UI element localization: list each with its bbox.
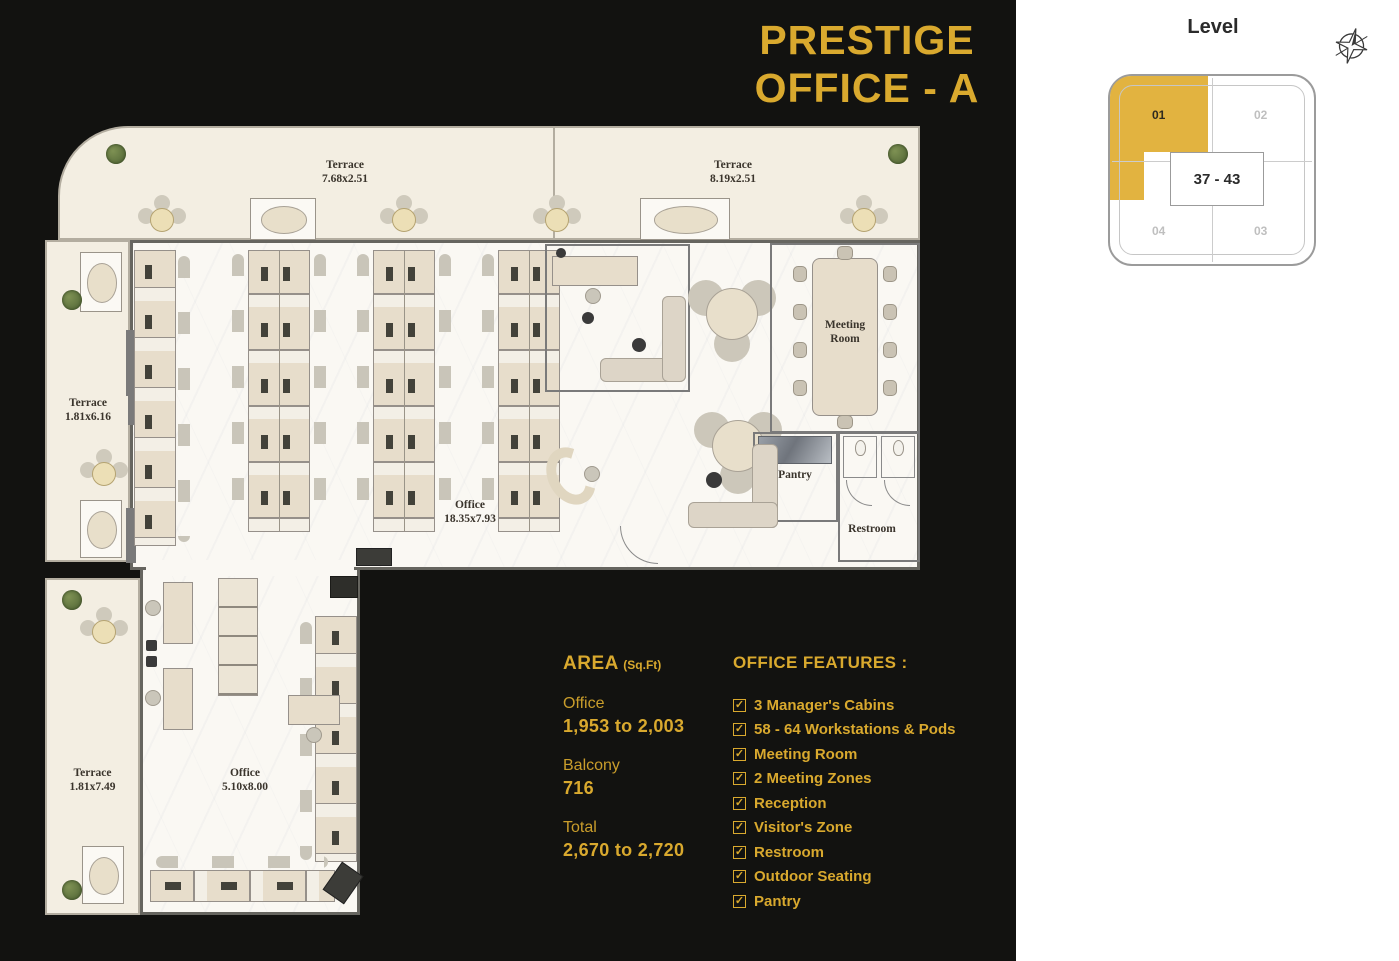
checkbox-checked-icon: ✓: [733, 699, 746, 712]
room-name: Terrace: [48, 396, 128, 410]
meeting-chair: [793, 304, 807, 320]
page-title: PRESTIGE OFFICE - A: [742, 16, 992, 112]
room-dims: 1.81x6.16: [48, 410, 128, 424]
reception-chair: [584, 466, 600, 482]
chair-row: [178, 256, 190, 542]
feature-item: ✓ Meeting Room: [733, 742, 1003, 767]
feature-label: Restroom: [754, 844, 824, 861]
area-total-label: Total: [563, 819, 733, 837]
room-name: Restroom: [832, 522, 912, 536]
terrace-table: [82, 846, 124, 904]
feature-item: ✓ Restroom: [733, 840, 1003, 865]
planter: [888, 144, 908, 164]
checkbox-checked-icon: ✓: [733, 797, 746, 810]
desk-equipment: [146, 656, 157, 667]
side-table: [632, 338, 646, 352]
chair-row: [232, 254, 244, 530]
feature-item: ✓ Pantry: [733, 889, 1003, 914]
area-office-label: Office: [563, 695, 733, 713]
room-name: Terrace: [678, 158, 788, 172]
checkbox-checked-icon: ✓: [733, 772, 746, 785]
feature-item: ✓ Visitor's Zone: [733, 816, 1003, 841]
planter: [62, 290, 82, 310]
room-dims: 5.10x8.00: [195, 780, 295, 794]
features-list: ✓ 3 Manager's Cabins ✓ 58 - 64 Workstati…: [733, 693, 1003, 914]
level-quadrant-01: 01: [1152, 108, 1165, 122]
office-chair: [145, 600, 161, 616]
meeting-zone-table-1: [706, 288, 758, 340]
storage-cabinets: [218, 578, 258, 696]
label-pantry: Pantry: [762, 468, 828, 482]
feature-label: 3 Manager's Cabins: [754, 697, 894, 714]
workstation-column-1: [134, 250, 176, 546]
workstation-row: [150, 870, 335, 902]
meeting-chair: [837, 415, 853, 429]
toilet-icon: [855, 440, 866, 456]
feature-item: ✓ 2 Meeting Zones: [733, 767, 1003, 792]
feature-label: Meeting Room: [754, 746, 857, 763]
room-name: Office: [415, 498, 525, 512]
meeting-chair: [883, 380, 897, 396]
label-restroom: Restroom: [832, 522, 912, 536]
room-dims: 1.81x7.49: [50, 780, 135, 794]
room-dims: 8.19x2.51: [678, 172, 788, 186]
area-total-value: 2,670 to 2,720: [563, 840, 733, 861]
chair-row: [439, 254, 451, 530]
area-section: AREA (Sq.Ft) Office 1,953 to 2,003 Balco…: [563, 653, 733, 861]
workstation-column-5: [315, 616, 357, 862]
terrace-table: [150, 208, 174, 232]
level-diagram: 01 02 03 04 37 - 43: [1108, 74, 1316, 266]
cabin-sofa: [662, 296, 686, 382]
feature-label: Visitor's Zone: [754, 819, 852, 836]
feature-label: 2 Meeting Zones: [754, 770, 872, 787]
workstation-desk: [288, 695, 340, 725]
chair-row: [314, 254, 326, 530]
level-heading: Level: [1108, 16, 1318, 39]
terrace-table: [545, 208, 569, 232]
meeting-chair: [883, 304, 897, 320]
label-office-secondary: Office 5.10x8.00: [195, 766, 295, 795]
label-office-main: Office 18.35x7.93: [415, 498, 525, 527]
toilet-icon: [893, 440, 904, 456]
terrace-table: [80, 500, 122, 558]
page-title-line1: PRESTIGE: [742, 16, 992, 64]
level-range: 37 - 43: [1170, 152, 1264, 206]
terrace-top: [58, 126, 920, 240]
terrace-table: [92, 462, 116, 486]
visitor-sofa: [688, 502, 778, 528]
planter: [106, 144, 126, 164]
desk-equipment: [146, 640, 157, 651]
meeting-chair: [837, 246, 853, 260]
terrace-table: [392, 208, 416, 232]
terrace-table: [92, 620, 116, 644]
manager-desk: [163, 582, 193, 644]
checkbox-checked-icon: ✓: [733, 821, 746, 834]
chair-row: [156, 856, 328, 868]
manager-desk: [163, 668, 193, 730]
features-heading: OFFICE FEATURES :: [733, 653, 1003, 673]
manager-desk: [552, 256, 638, 286]
feature-label: Outdoor Seating: [754, 868, 872, 885]
office-chair: [306, 727, 322, 743]
room-dims: 18.35x7.93: [415, 512, 525, 526]
label-terrace-top-left: Terrace 7.68x2.51: [290, 158, 400, 187]
feature-label: Reception: [754, 795, 827, 812]
label-terrace-top-right: Terrace 8.19x2.51: [678, 158, 788, 187]
compass-icon: [1328, 20, 1376, 68]
checkbox-checked-icon: ✓: [733, 895, 746, 908]
chair-row: [482, 254, 494, 530]
checkbox-checked-icon: ✓: [733, 870, 746, 883]
planter: [62, 880, 82, 900]
terrace-table: [80, 252, 122, 312]
print-station: [356, 548, 392, 566]
area-office-value: 1,953 to 2,003: [563, 716, 733, 737]
feature-label: 58 - 64 Workstations & Pods: [754, 721, 955, 738]
room-name: Pantry: [762, 468, 828, 482]
room-name: Terrace: [290, 158, 400, 172]
side-table: [582, 312, 594, 324]
checkbox-checked-icon: ✓: [733, 748, 746, 761]
feature-label: Pantry: [754, 893, 801, 910]
room-name: Meeting Room: [812, 318, 878, 347]
workstation-column-2: [248, 250, 310, 532]
page: PRESTIGE OFFICE - A: [0, 0, 1399, 961]
features-section: OFFICE FEATURES : ✓ 3 Manager's Cabins ✓…: [733, 653, 1003, 914]
terrace-table: [852, 208, 876, 232]
office-seam: [146, 560, 354, 576]
feature-item: ✓ 58 - 64 Workstations & Pods: [733, 718, 1003, 743]
copier: [330, 576, 358, 598]
desk-plant: [556, 248, 566, 258]
terrace-table: [250, 198, 316, 240]
checkbox-checked-icon: ✓: [733, 846, 746, 859]
area-unit: (Sq.Ft): [623, 658, 661, 672]
label-meeting-room: Meeting Room: [812, 318, 878, 347]
office-chair: [145, 690, 161, 706]
feature-item: ✓ Reception: [733, 791, 1003, 816]
label-terrace-left: Terrace 1.81x6.16: [48, 396, 128, 425]
area-balcony-value: 716: [563, 778, 733, 799]
room-name: Office: [195, 766, 295, 780]
chair-row: [357, 254, 369, 530]
feature-item: ✓ Outdoor Seating: [733, 865, 1003, 890]
room-name: Terrace: [50, 766, 135, 780]
meeting-chair: [883, 266, 897, 282]
area-heading: AREA: [563, 653, 619, 674]
meeting-chair: [793, 380, 807, 396]
level-quadrant-02: 02: [1254, 108, 1267, 122]
page-title-line2: OFFICE - A: [742, 64, 992, 112]
room-dims: 7.68x2.51: [290, 172, 400, 186]
level-quadrant-03: 03: [1254, 224, 1267, 238]
visitor-side-table: [706, 472, 722, 488]
area-balcony-label: Balcony: [563, 757, 733, 775]
meeting-chair: [793, 266, 807, 282]
feature-item: ✓ 3 Manager's Cabins: [733, 693, 1003, 718]
terrace-table: [640, 198, 730, 240]
checkbox-checked-icon: ✓: [733, 723, 746, 736]
workstation-column-3: [373, 250, 435, 532]
meeting-chair: [793, 342, 807, 358]
area-heading-row: AREA (Sq.Ft): [563, 653, 733, 675]
label-terrace-bottom: Terrace 1.81x7.49: [50, 766, 135, 795]
meeting-chair: [883, 342, 897, 358]
planter: [62, 590, 82, 610]
office-chair: [585, 288, 601, 304]
level-quadrant-04: 04: [1152, 224, 1165, 238]
